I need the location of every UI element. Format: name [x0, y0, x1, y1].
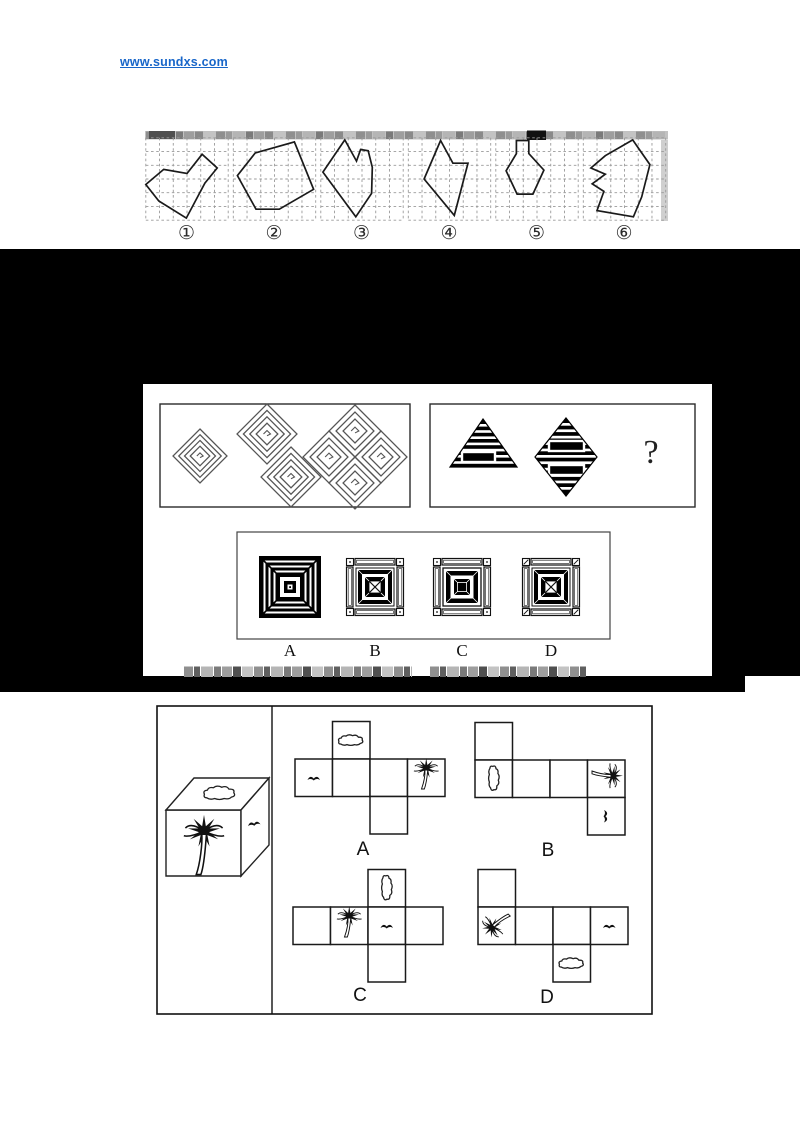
figure-label-6: ⑥ [615, 222, 632, 244]
option-letter-a: A [284, 641, 296, 661]
option-letter-b: B [369, 641, 380, 661]
page-artwork [0, 0, 800, 1132]
figure-label-4: ④ [440, 222, 457, 244]
net-label-c: C [353, 985, 367, 1007]
net-label-d: D [540, 987, 554, 1009]
net-label-b: B [542, 840, 555, 862]
net-label-a: A [357, 839, 370, 861]
figure-label-2: ② [265, 222, 282, 244]
scanned-test-page: www.sundxs.com ① ② ③ ④ ⑤ ⑥ ? A B C D A B… [0, 0, 800, 1132]
figure-cell-2 [233, 138, 315, 220]
cube-panel [157, 706, 652, 1014]
figure-label-5: ⑤ [528, 222, 545, 244]
figure-cell-3 [321, 138, 403, 220]
figure-cell-4 [408, 138, 490, 220]
figure-label-3: ③ [353, 222, 370, 244]
question-mark: ? [643, 434, 658, 472]
options-panel [237, 532, 610, 639]
net-b [475, 723, 625, 836]
option-tile-a [259, 556, 321, 618]
scan-artifact-strip [145, 131, 668, 222]
option-letter-c: C [456, 641, 467, 661]
figure-label-1: ① [178, 222, 195, 244]
redacted-text-line [184, 667, 586, 678]
option-letter-d: D [545, 641, 557, 661]
net-d [476, 870, 628, 983]
cube-figure [166, 778, 269, 876]
figure-cell-1 [146, 138, 228, 220]
figure-cell-5 [496, 138, 578, 220]
net-c [293, 870, 443, 983]
net-a [295, 722, 445, 835]
figure-cell-6 [583, 138, 665, 220]
